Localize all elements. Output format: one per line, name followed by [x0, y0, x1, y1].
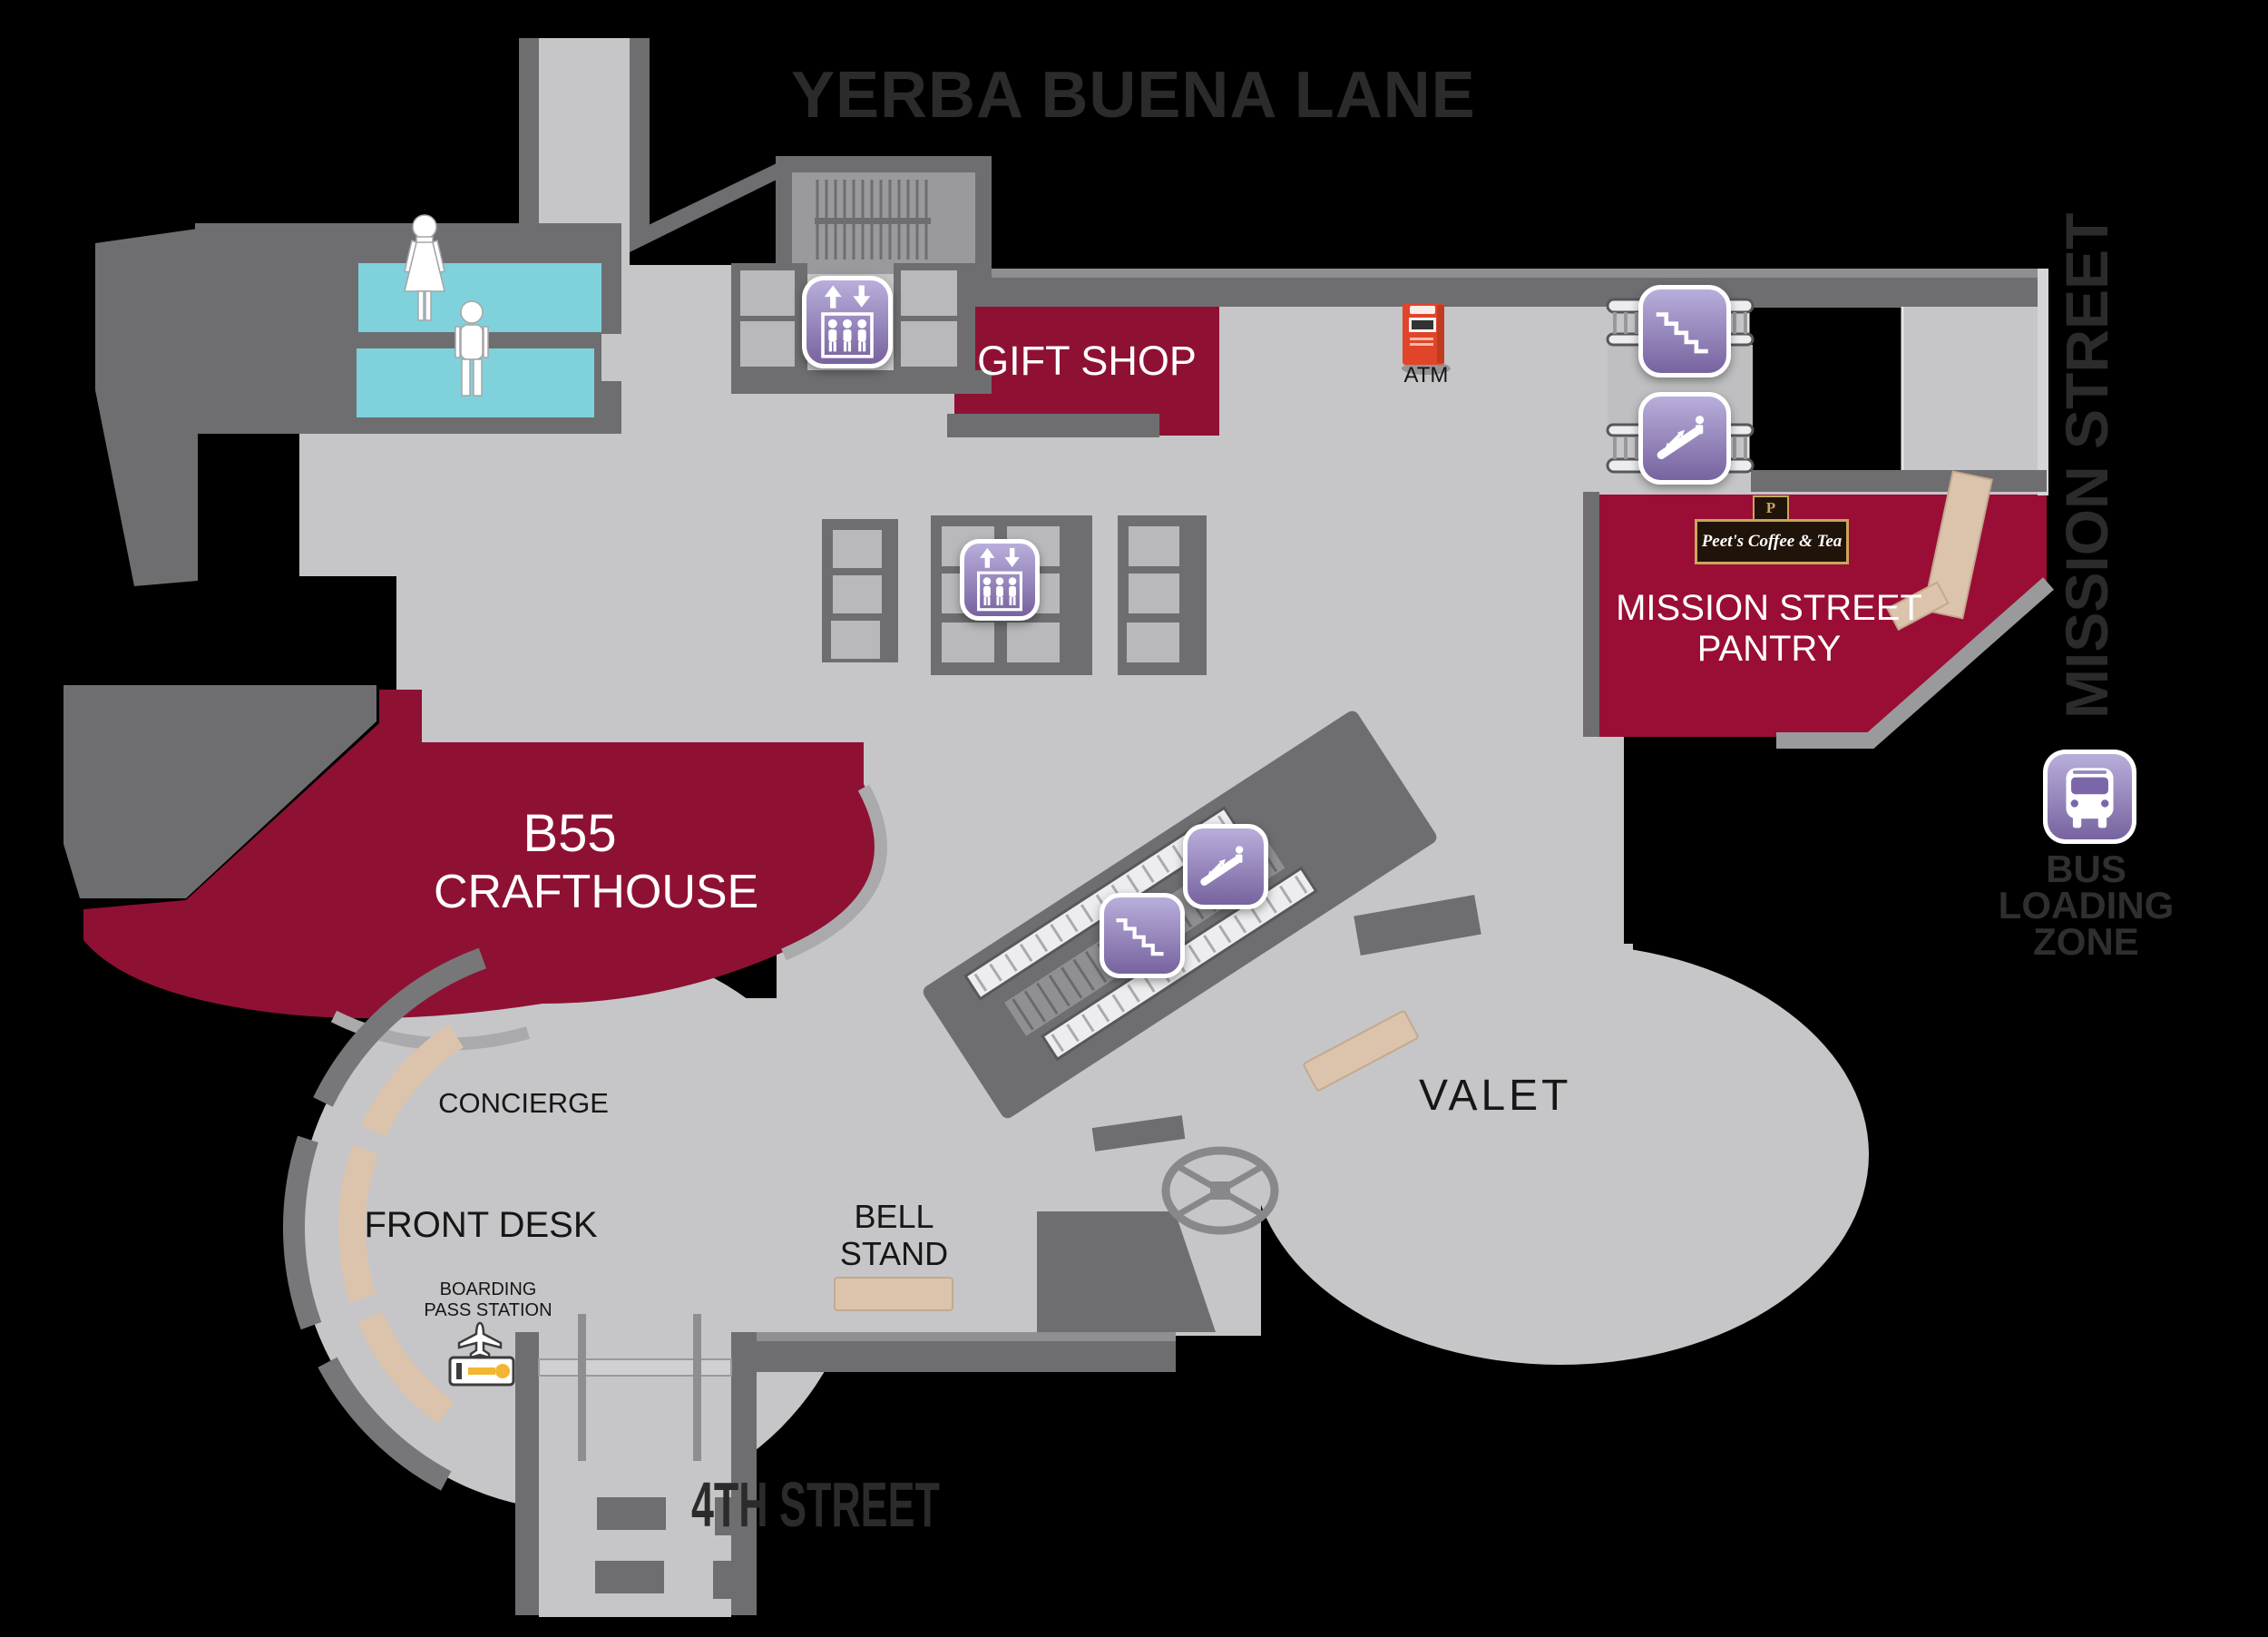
bell-stand-label: BELL STAND: [833, 1198, 955, 1273]
stairs-icon: [1638, 285, 1731, 377]
street-label-yerba-buena: YERBA BUENA LANE: [791, 58, 1435, 132]
bus-icon: [2043, 750, 2136, 844]
front-desk-label: FRONT DESK: [361, 1205, 601, 1246]
floor-plan-geometry: [0, 0, 2268, 1637]
courtyard-void: [1748, 306, 1902, 472]
peets-logo-emblem: P: [1753, 495, 1789, 521]
elevator-icon: [802, 276, 893, 368]
valet-label: VALET: [1419, 1071, 1572, 1121]
floor-plan-map: YERBA BUENA LANE MISSION STREET 4TH STRE…: [0, 0, 2268, 1637]
escalator-icon: [1638, 392, 1731, 485]
street-label-mission: MISSION STREET: [2052, 147, 2121, 719]
boarding-pass-label: BOARDING PASS STATION: [410, 1279, 566, 1321]
bus-loading-zone-label: BUS LOADING ZONE: [1989, 851, 2184, 960]
crafthouse-label: B55 CRAFTHOUSE: [434, 803, 706, 921]
bell-stand-desk: [835, 1278, 953, 1310]
pantry-label: MISSION STREET PANTRY: [1604, 588, 1934, 670]
concierge-label: CONCIERGE: [419, 1087, 628, 1120]
gift-shop-label: GIFT SHOP: [954, 338, 1219, 385]
atm-label: ATM: [1390, 363, 1462, 388]
peets-coffee-logo: Peet's Coffee & Tea: [1695, 519, 1849, 564]
elevator-icon: [960, 539, 1040, 621]
stairs-icon: [1100, 893, 1185, 978]
escalator-icon: [1183, 824, 1268, 909]
street-label-4th: 4TH STREET: [691, 1468, 940, 1541]
